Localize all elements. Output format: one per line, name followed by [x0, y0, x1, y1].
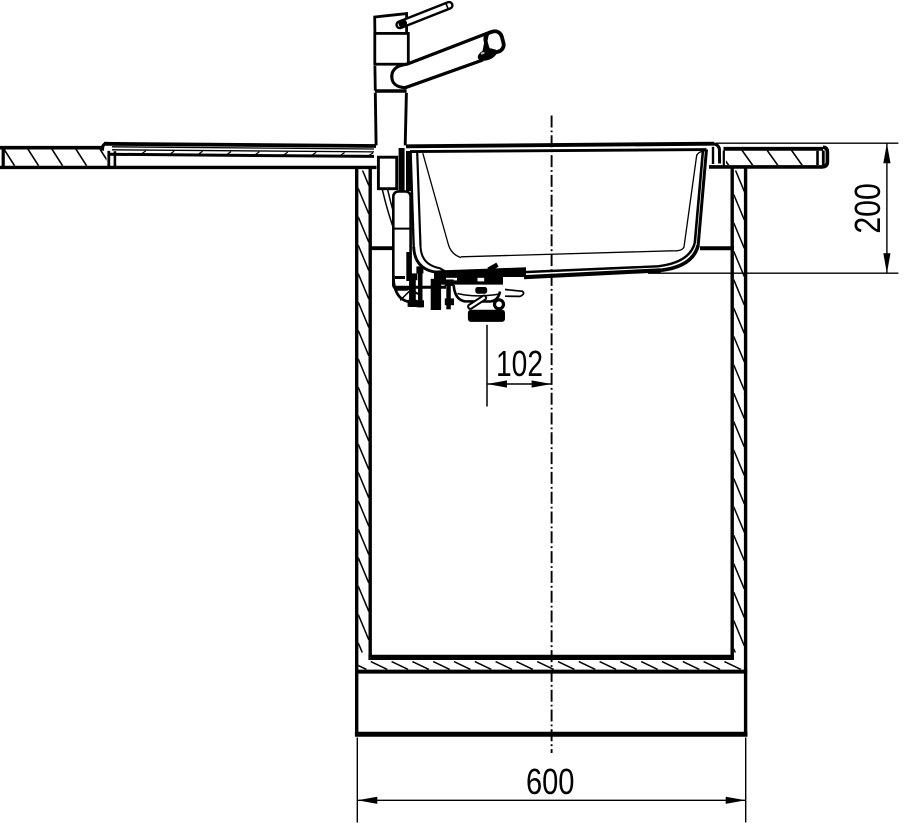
svg-text:200: 200 [847, 183, 888, 234]
svg-text:102: 102 [496, 343, 543, 384]
svg-text:600: 600 [526, 761, 575, 802]
